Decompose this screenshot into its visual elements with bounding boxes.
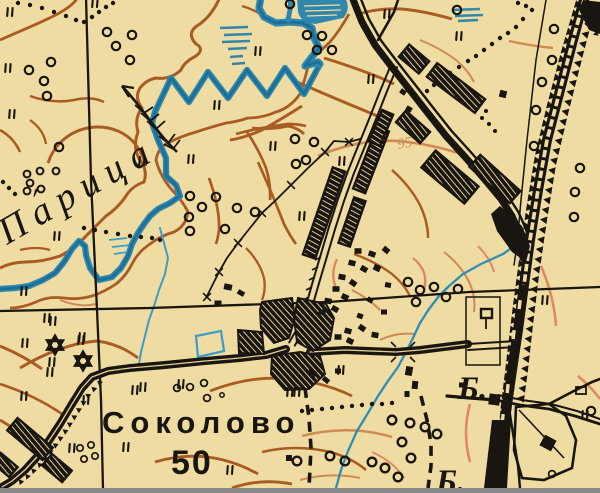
- svg-text:Соколово: Соколово: [102, 405, 300, 440]
- svg-text:Б.: Б.: [457, 371, 487, 407]
- svg-text:50: 50: [171, 444, 213, 482]
- svg-text:Б.: Б.: [435, 464, 465, 488]
